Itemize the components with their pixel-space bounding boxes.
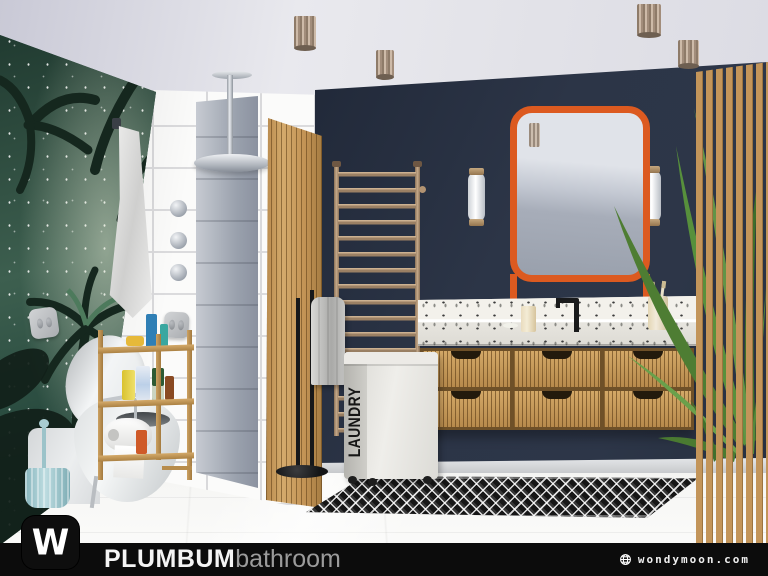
basket-foot: [368, 478, 377, 486]
vertical-slat-screen: [696, 62, 768, 564]
pump-bottle-white: [136, 366, 150, 400]
ceiling-light: [376, 50, 394, 77]
diamond-pattern-rug: [306, 476, 698, 518]
wall-sconce: [468, 172, 485, 222]
shelf-board: [98, 452, 194, 461]
mirror-reflection: [529, 123, 540, 147]
shelf-rung: [162, 466, 192, 470]
product-title: PLUMBUMbathroom: [104, 545, 341, 574]
towel-stand-pole: [296, 298, 300, 470]
wood-shelf-unit: [98, 330, 194, 480]
shower-knob: [170, 232, 187, 249]
shower-knob: [170, 200, 187, 217]
flush-plate: [28, 306, 60, 340]
globe-icon: [619, 553, 632, 566]
shelf-board: [98, 398, 194, 407]
logo-monogram: W: [32, 522, 70, 564]
ladder-valve: [419, 186, 426, 193]
sponge-yellow: [126, 336, 144, 346]
faucet-riser: [574, 300, 579, 332]
bottle-orange: [136, 430, 147, 454]
website-text: wondymoon.com: [638, 553, 750, 566]
title-sub: bathroom: [235, 545, 341, 574]
toilet-brush-handle: [42, 426, 46, 472]
vanity-drawer: [514, 391, 601, 427]
soap-dish: [503, 323, 518, 328]
candle: [521, 306, 536, 332]
shower-knob: [170, 264, 187, 281]
faucet-spout: [556, 298, 560, 308]
laundry-basket: LAUNDRY: [344, 352, 438, 479]
website-credit: wondymoon.com: [619, 553, 750, 566]
bottle-amber: [165, 376, 174, 400]
footer-bar: PLUMBUMbathroom wondymoon.com: [0, 543, 768, 576]
rain-shower-head: [194, 154, 270, 172]
ceiling-light: [294, 16, 316, 48]
laundry-basket-label: LAUNDRY: [300, 410, 410, 435]
toilet-brush-cup: [25, 468, 70, 508]
ceiling-light: [637, 4, 661, 35]
gray-towel: [311, 297, 345, 385]
shelf-board: [98, 344, 194, 353]
ladder-cap: [413, 161, 422, 167]
ceiling-light: [678, 40, 699, 66]
creator-logo: W: [22, 516, 79, 569]
vanity-drawer: [514, 351, 601, 387]
laundry-basket-rim: [344, 352, 438, 364]
basket-foot: [348, 476, 357, 484]
title-main: PLUMBUM: [104, 545, 235, 574]
ladder-cap: [332, 161, 341, 167]
bathroom-render-scene: LAUNDRY PLUMBUMbathroom: [0, 0, 768, 576]
shelf-leg: [156, 334, 161, 460]
bottle-yellow: [122, 370, 135, 400]
basket-foot: [423, 476, 432, 484]
shower-pole: [227, 75, 233, 161]
towel-stand-base: [276, 465, 328, 478]
toilet-brush-knob: [39, 419, 49, 428]
